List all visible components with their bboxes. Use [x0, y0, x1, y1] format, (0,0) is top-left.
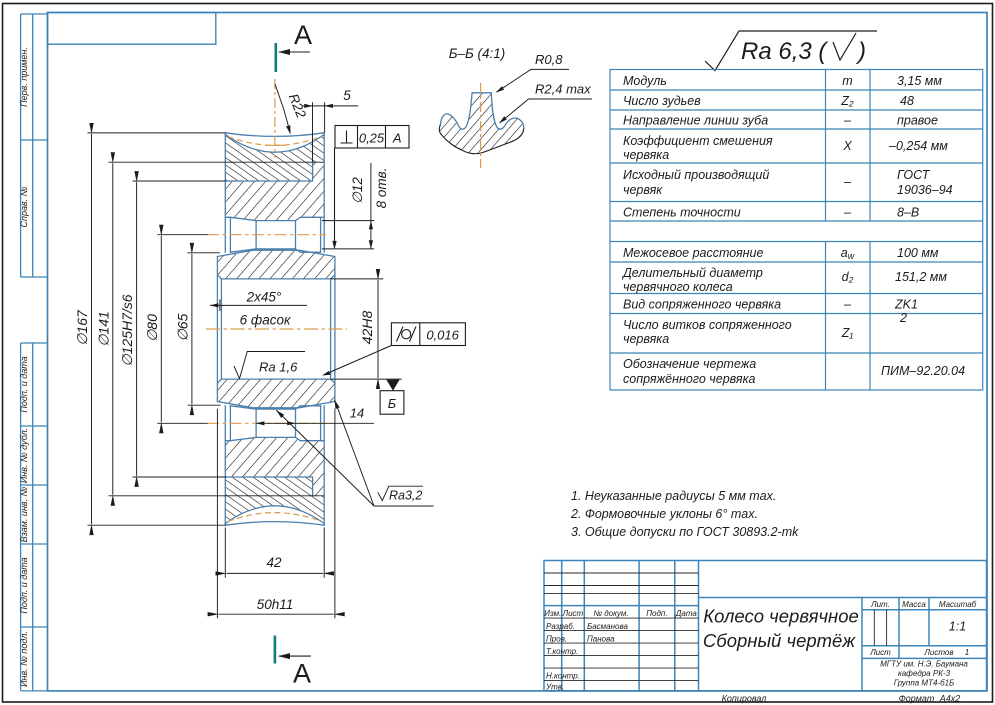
svg-text:0,016: 0,016	[426, 328, 459, 343]
svg-text:Панова: Панова	[587, 634, 615, 643]
svg-text:2х45°: 2х45°	[246, 290, 282, 305]
svg-text:Т.контр.: Т.контр.	[546, 647, 578, 656]
svg-text:Подп. и дата: Подп. и дата	[19, 356, 29, 412]
svg-text:0,25: 0,25	[359, 131, 385, 146]
svg-text:ZK1: ZK1	[894, 298, 918, 312]
svg-text:19036–94: 19036–94	[897, 183, 953, 197]
svg-text:червяка: червяка	[623, 148, 669, 162]
svg-text:Число витков сопряженного: Число витков сопряженного	[623, 318, 792, 332]
svg-text:–: –	[843, 114, 852, 128]
svg-text:m: m	[842, 74, 852, 88]
svg-text:Б: Б	[388, 396, 397, 411]
svg-text:151,2 мм: 151,2 мм	[895, 270, 947, 284]
svg-text:Перв. примен.: Перв. примен.	[19, 47, 29, 107]
svg-text:Ra 1,6: Ra 1,6	[259, 360, 298, 375]
svg-text:48: 48	[900, 94, 914, 108]
svg-text:Масса: Масса	[902, 600, 926, 609]
svg-text:№ докум.: № докум.	[593, 609, 628, 618]
svg-text:Листов: Листов	[923, 648, 953, 657]
svg-text:Справ. №: Справ. №	[19, 186, 29, 227]
svg-text:–: –	[843, 175, 852, 189]
svg-text:100 мм: 100 мм	[897, 246, 939, 260]
svg-text:Б–Б (4:1): Б–Б (4:1)	[449, 46, 506, 61]
svg-text:Z₁: Z₁	[841, 326, 854, 340]
svg-text:5: 5	[343, 88, 351, 103]
svg-text:Направление линии зуба: Направление линии зуба	[623, 114, 768, 128]
svg-text:R0,8: R0,8	[535, 52, 563, 67]
svg-text:А: А	[293, 659, 311, 689]
svg-text:Подп. и дата: Подп. и дата	[19, 557, 29, 613]
svg-text:14: 14	[350, 406, 364, 421]
svg-text:червячного колеса: червячного колеса	[623, 280, 733, 294]
svg-text:А: А	[392, 131, 402, 146]
svg-text:правое: правое	[897, 114, 938, 128]
svg-text:Лит.: Лит.	[870, 600, 890, 609]
svg-text:Группа МТ4-б1Б: Группа МТ4-б1Б	[894, 679, 954, 688]
svg-text:Z₂: Z₂	[840, 94, 854, 108]
svg-text:ПИМ–92.20.04: ПИМ–92.20.04	[881, 364, 965, 378]
svg-text:Сборный чертёж: Сборный чертёж	[703, 630, 856, 651]
svg-text:Инв. № подл.: Инв. № подл.	[19, 631, 29, 687]
svg-text:червяка: червяка	[623, 332, 669, 346]
svg-text:42H8: 42H8	[359, 311, 375, 345]
svg-text:Пров.: Пров.	[546, 634, 567, 643]
svg-text:R2,4 max: R2,4 max	[535, 82, 591, 97]
svg-text:d₂: d₂	[842, 270, 854, 284]
svg-text:Инв. № дубл.: Инв. № дубл.	[19, 428, 29, 483]
svg-text:Ra3,2: Ra3,2	[389, 489, 422, 503]
svg-text:∅141: ∅141	[95, 311, 111, 347]
svg-text:Степень точности: Степень точности	[623, 206, 741, 220]
svg-text:–0,254 мм: –0,254 мм	[888, 139, 948, 153]
svg-text:1. Неуказанные радиусы 5 мм ma: 1. Неуказанные радиусы 5 мм max.	[571, 489, 776, 503]
svg-text:Утв.: Утв.	[545, 682, 564, 691]
svg-text:–: –	[843, 206, 852, 220]
svg-text:Число зудьев: Число зудьев	[623, 94, 701, 108]
svg-text:кафедра РК-3: кафедра РК-3	[898, 669, 951, 678]
svg-text:3. Общие допуски по ГОСТ 30893: 3. Общие допуски по ГОСТ 30893.2-mk	[571, 525, 799, 539]
svg-text:А: А	[294, 20, 312, 50]
svg-text:Делительный диаметр: Делительный диаметр	[621, 266, 763, 280]
svg-text:∅80: ∅80	[144, 314, 160, 342]
svg-text:∅12: ∅12	[350, 177, 365, 204]
svg-text:–: –	[843, 298, 852, 312]
svg-text:Басманова: Басманова	[587, 622, 628, 631]
svg-text:Дата: Дата	[675, 609, 698, 618]
svg-text:Межосевое расстояние: Межосевое расстояние	[623, 246, 763, 260]
svg-text:Масштаб: Масштаб	[939, 600, 977, 609]
svg-text:червяк: червяк	[623, 183, 663, 197]
svg-text:2: 2	[899, 311, 907, 325]
svg-text:Лист: Лист	[869, 648, 891, 657]
svg-text:Изм.: Изм.	[544, 609, 561, 618]
svg-text:6 фасок: 6 фасок	[240, 313, 291, 328]
svg-text:8–В: 8–В	[897, 206, 919, 220]
svg-text:Колесо червячное: Колесо червячное	[703, 606, 859, 627]
svg-text:1: 1	[965, 648, 969, 657]
svg-text:2. Формовочные уклоны 6° max.: 2. Формовочные уклоны 6° max.	[570, 507, 758, 521]
svg-text:Обозначение чертежа: Обозначение чертежа	[623, 357, 756, 371]
svg-text:3,15 мм: 3,15 мм	[897, 74, 942, 88]
svg-text:Лист: Лист	[562, 609, 584, 618]
svg-text:∅65: ∅65	[174, 313, 190, 341]
svg-text:8 отв.: 8 отв.	[374, 168, 389, 209]
svg-text:Формат: Формат	[899, 694, 935, 704]
svg-text:Вид сопряженного червяка: Вид сопряженного червяка	[623, 298, 781, 312]
svg-text:1:1: 1:1	[949, 620, 966, 634]
svg-text:Исходный производящий: Исходный производящий	[623, 168, 769, 182]
svg-text:Взам. инв. №: Взам. инв. №	[19, 486, 29, 542]
svg-text:сопряжённого червяка: сопряжённого червяка	[623, 372, 755, 386]
svg-text:Разраб.: Разраб.	[546, 622, 575, 631]
svg-text:∅167: ∅167	[74, 309, 90, 346]
svg-text:А4х2: А4х2	[939, 694, 961, 704]
svg-text:МГТУ им. Н.Э. Баумана: МГТУ им. Н.Э. Баумана	[880, 660, 968, 669]
svg-text:42: 42	[266, 555, 282, 570]
svg-text:Копировал: Копировал	[722, 694, 767, 704]
svg-text:Ra 6,3 (: Ra 6,3 (	[741, 38, 829, 65]
svg-text:Подп.: Подп.	[646, 609, 667, 618]
svg-text:Н.контр.: Н.контр.	[546, 671, 580, 680]
svg-text:Модуль: Модуль	[623, 74, 667, 88]
svg-text:X: X	[842, 139, 852, 153]
svg-text:Коэффициент смешения: Коэффициент смешения	[623, 134, 773, 148]
svg-text:∅125H7/s6: ∅125H7/s6	[119, 294, 135, 366]
svg-text:ГОСТ: ГОСТ	[897, 168, 931, 182]
svg-text:50h11: 50h11	[257, 597, 294, 612]
